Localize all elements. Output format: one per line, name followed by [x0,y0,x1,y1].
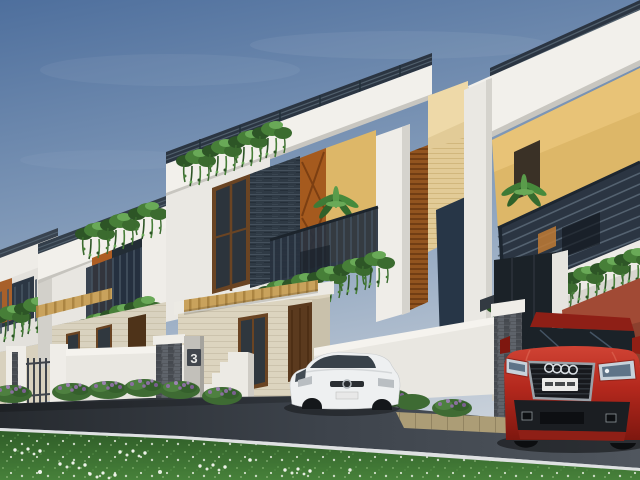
column-shade [402,124,410,315]
license-plate [336,392,358,399]
side-wall [38,278,52,370]
fog-light [606,414,616,422]
side-mirror [632,336,640,354]
air-intake [540,412,584,424]
cloud-wisp [250,31,550,59]
flowering-shrub [432,399,472,417]
cloud-wisp [40,54,300,86]
villa-render: 3 [0,0,640,480]
fog-light [522,412,532,420]
flowering-shrub [52,383,92,401]
render-canvas: 3 [0,0,640,480]
license-plate-text-blur [545,382,575,386]
flowering-shrub [88,381,128,399]
flowering-shrub [160,381,200,399]
stepped-wall-shade [248,352,254,398]
flowering-shrub [124,379,164,397]
headlight-led [605,369,609,373]
house-number: 3 [190,351,197,366]
flowering-shrub [202,387,242,405]
grille [330,381,364,387]
